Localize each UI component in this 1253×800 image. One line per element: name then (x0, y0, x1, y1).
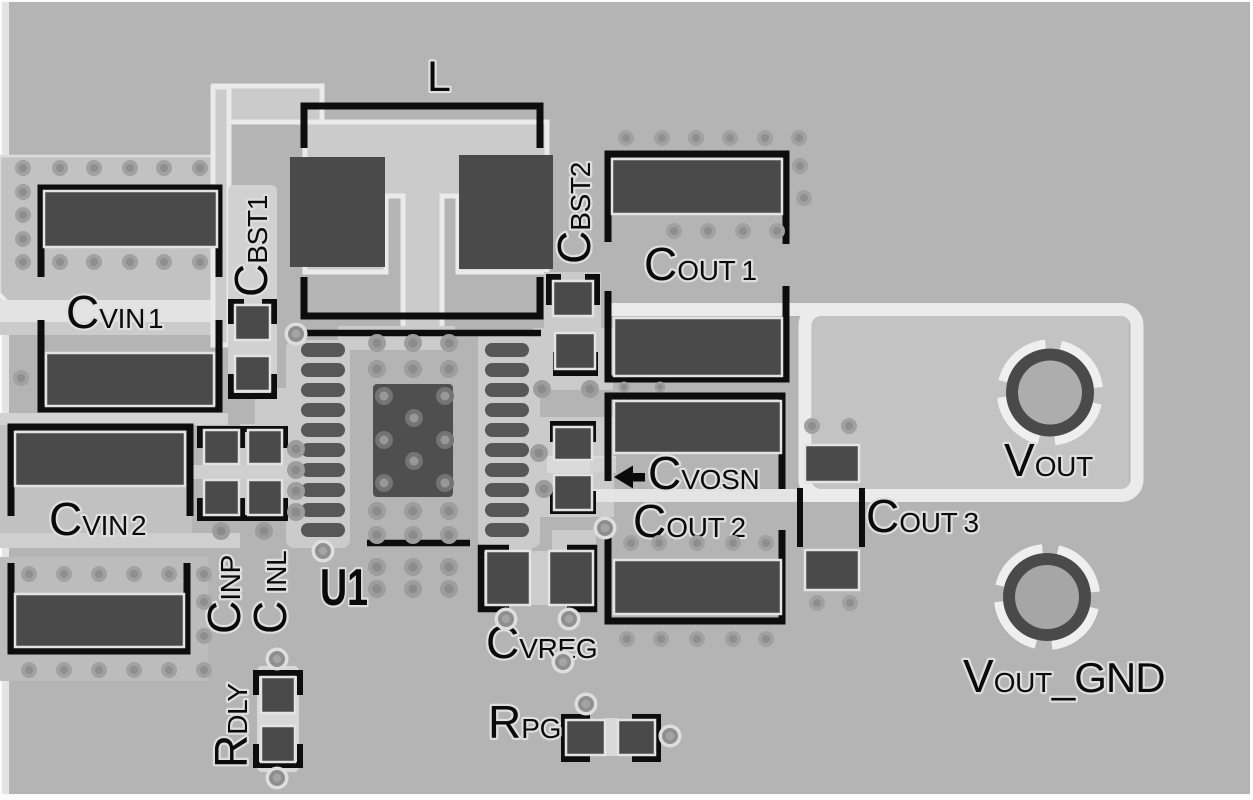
svg-text:U1: U1 (320, 559, 368, 617)
svg-text:VOUT_GND: VOUT_GND (963, 650, 1165, 702)
svg-text:L: L (427, 53, 451, 101)
